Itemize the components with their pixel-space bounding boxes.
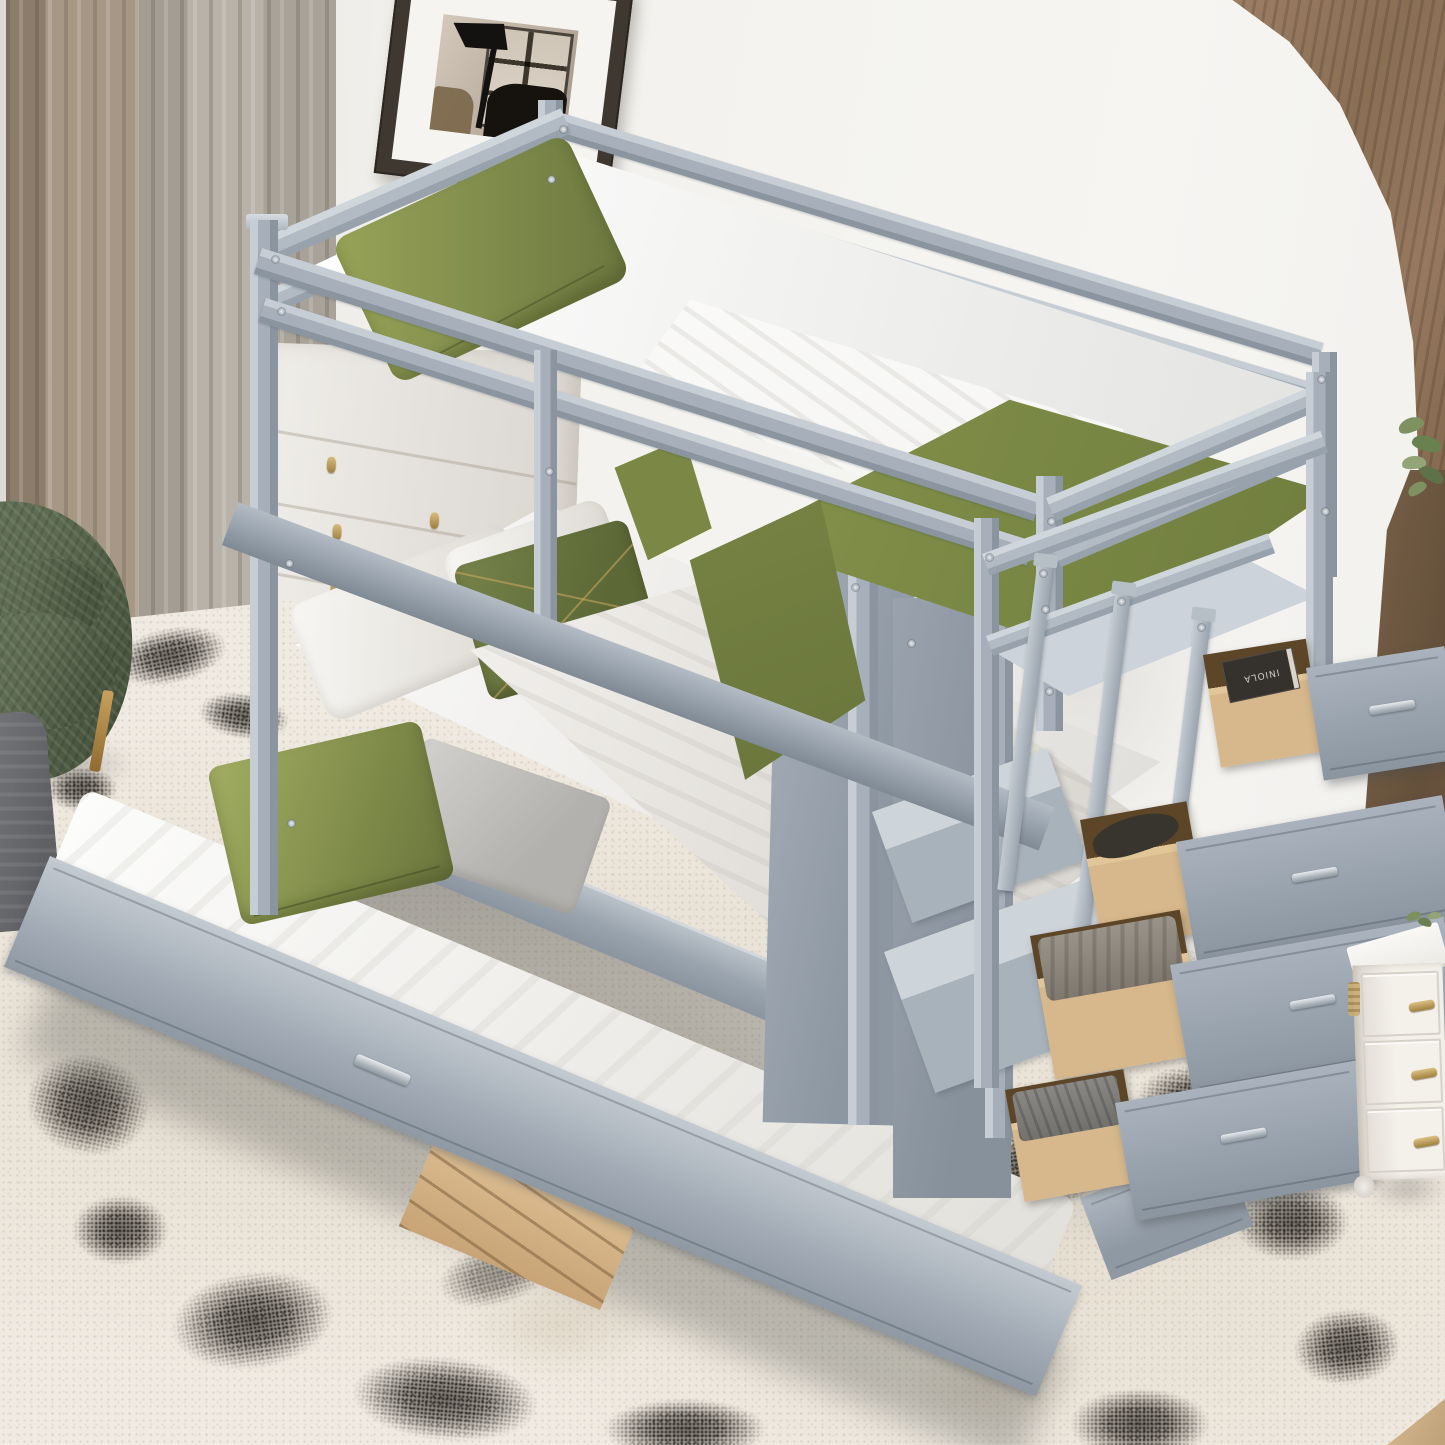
screw [546,468,553,475]
gold-handle [1408,999,1435,1012]
drawer-box-1: INIOLA [1203,639,1324,768]
screw [986,554,993,561]
nightstand-body [1352,962,1445,1180]
screw [1322,508,1329,515]
rug-blotch [58,1185,183,1275]
screw [1198,624,1205,631]
nightstand-drawer [1363,1039,1443,1106]
nightstand-drawer [1365,1107,1445,1174]
art-chair [429,86,475,135]
screw [908,640,915,647]
bun-foot [1354,1176,1374,1198]
bedroom-product-photo: INIOLA [0,0,1445,1445]
stair-rail-post [1306,372,1333,672]
gold-handle [1413,1135,1440,1148]
art-lamp-shade [451,18,511,53]
gold-handle [1410,1067,1437,1080]
plant-leaf [1428,911,1442,919]
screw [852,584,859,591]
gold-applique [1348,982,1360,1016]
screw [560,126,567,133]
nightstand-drawer [1361,971,1441,1038]
screw [288,820,295,827]
stair-rail-post [974,518,999,1088]
screw [1040,570,1047,577]
screw [1118,598,1125,605]
screw [1046,688,1053,695]
drawer-front-1 [1306,646,1445,780]
rug-blotch [580,1390,790,1445]
book-title: INIOLA [1242,667,1280,684]
dresser-gold-pull [430,512,440,528]
screw [548,176,555,183]
screw [1318,376,1325,383]
screw [1042,606,1049,613]
screw [278,308,285,315]
book-in-drawer: INIOLA [1221,647,1300,703]
screw [286,560,293,567]
screw [272,256,279,263]
screw [1048,518,1055,525]
dresser-seam [275,430,576,486]
dresser-gold-pull [327,457,337,473]
nightstand [1350,918,1445,1218]
rug-blotch [1273,1291,1420,1403]
